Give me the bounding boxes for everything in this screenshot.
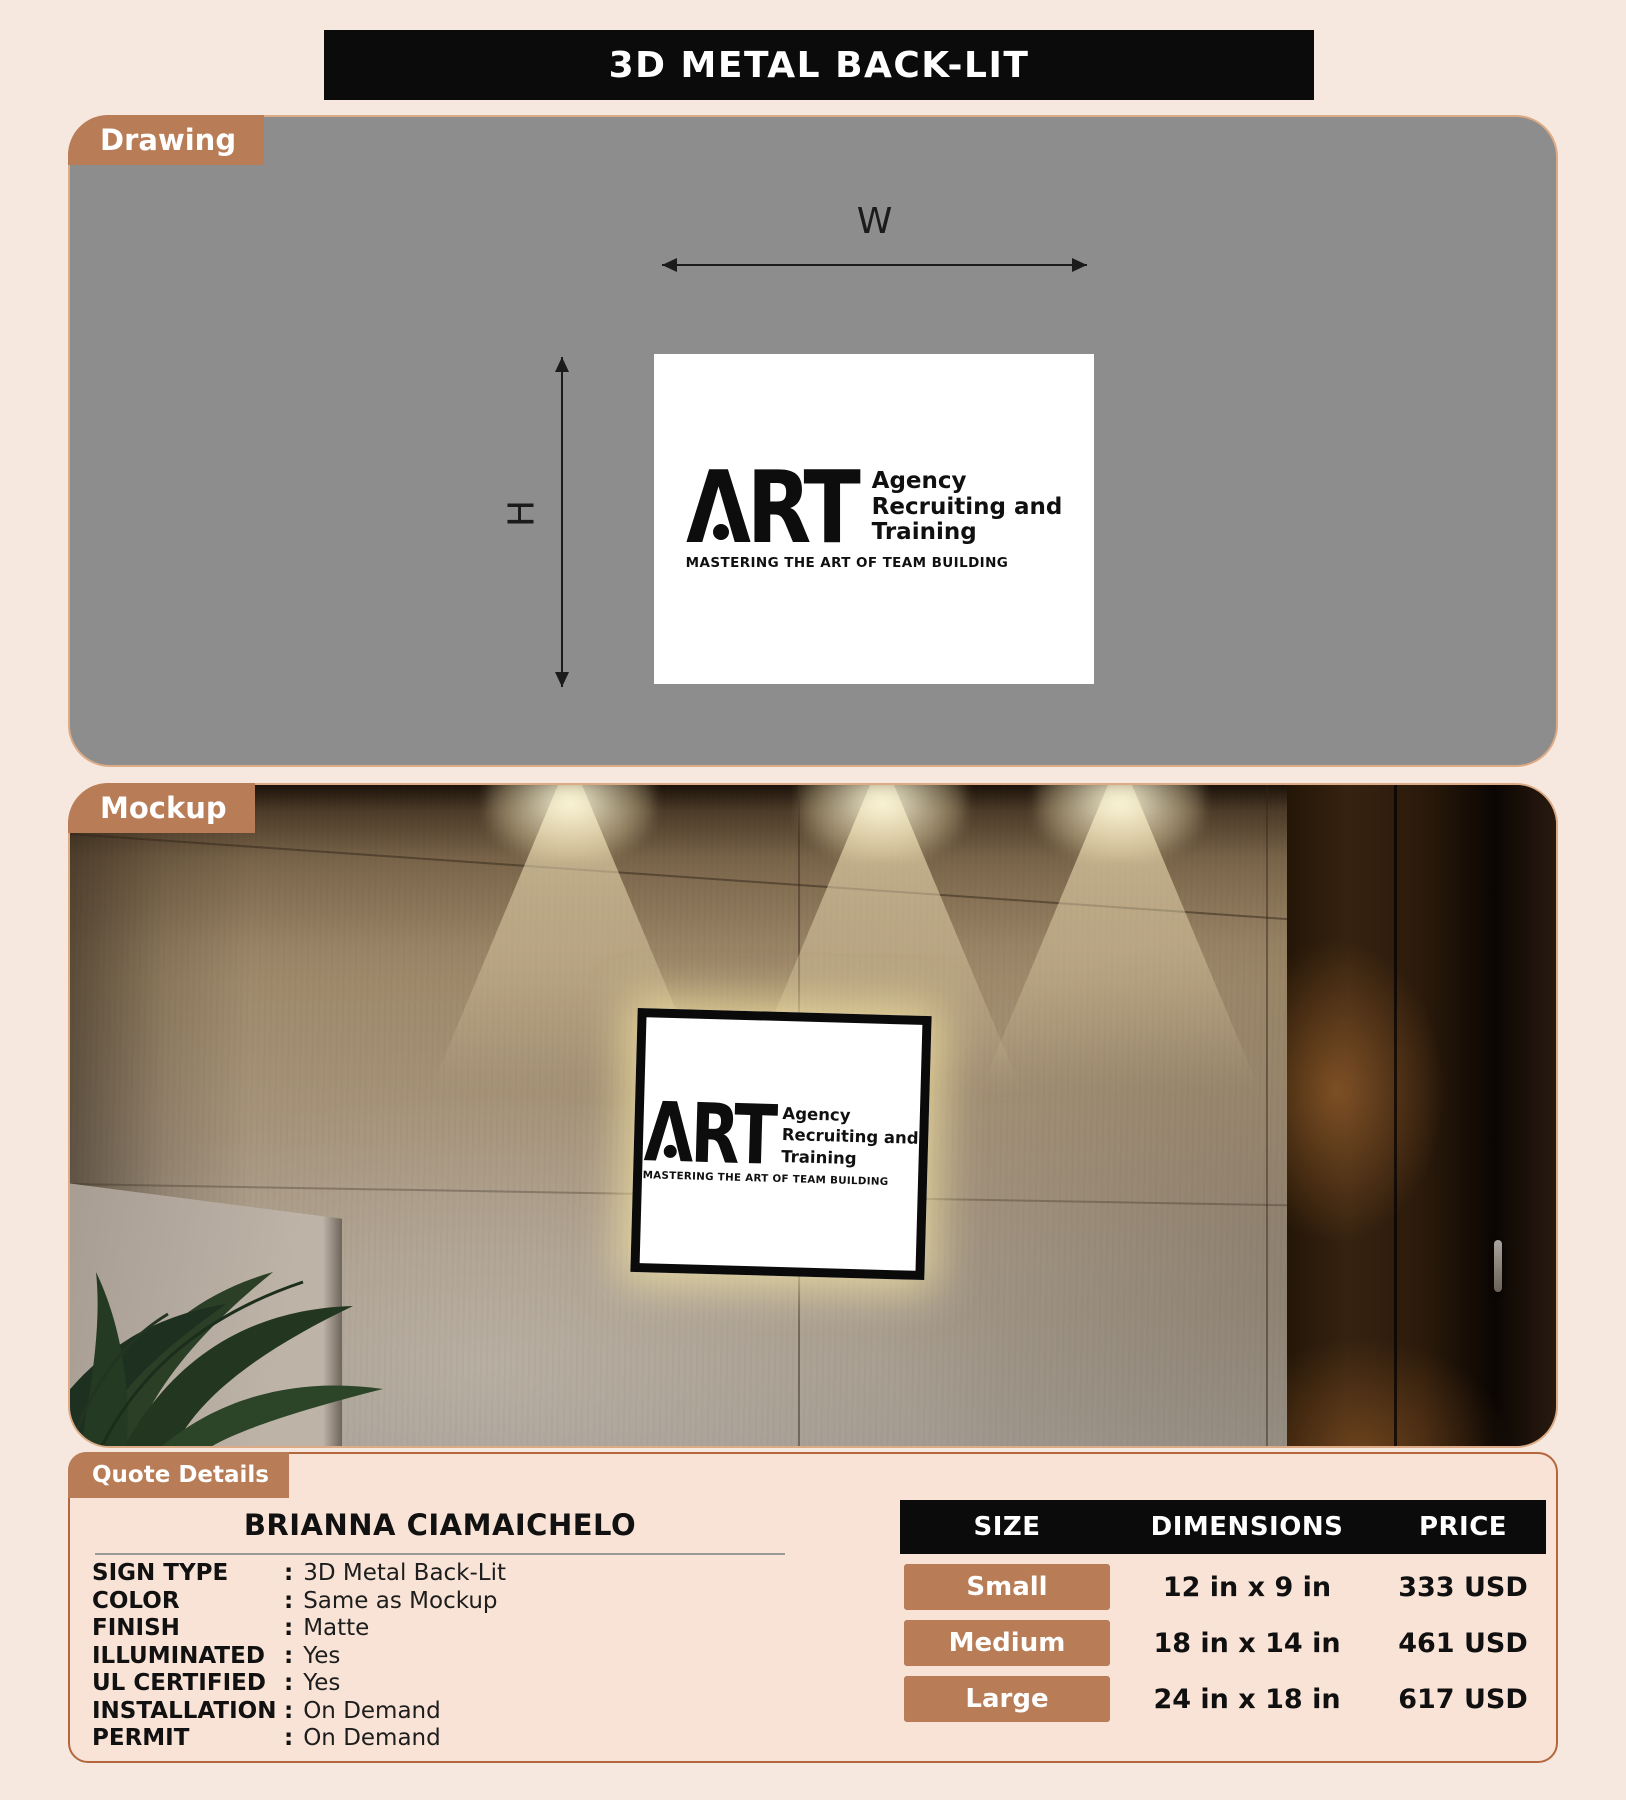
table-row-small: Small 12 in x 9 in 333 USD [900,1564,1546,1610]
spec-colon: : [284,1615,293,1641]
spec-label: ILLUMINATED [92,1643,284,1671]
price-value: 333 USD [1380,1572,1546,1603]
table-row-medium: Medium 18 in x 14 in 461 USD [900,1620,1546,1666]
art-monogram: ΛRT [686,468,858,546]
door-seam [1394,785,1397,1446]
dimensions-value: 12 in x 9 in [1114,1572,1380,1603]
wall-seam [1266,785,1268,1446]
logo-text-lines: Agency Recruiting and Training [781,1103,920,1171]
logo-line: Training [872,519,1063,545]
page-title: 3D METAL BACK-LIT [324,30,1314,100]
spec-row: ILLUMINATED:Yes [92,1643,506,1671]
size-button-medium[interactable]: Medium [904,1620,1110,1666]
logo-line: Recruiting and [872,494,1063,520]
spec-label: COLOR [92,1588,284,1616]
spec-value: On Demand [303,1698,441,1724]
art-logo: ΛRT Agency Recruiting and Training MASTE… [686,468,1063,571]
quote-sheet-page: 3D METAL BACK-LIT Drawing W H ΛRT Agency… [0,0,1626,1800]
spec-label: UL CERTIFIED [92,1670,284,1698]
spec-row: UL CERTIFIED:Yes [92,1670,506,1698]
spec-value: Same as Mockup [303,1588,497,1614]
spec-label: PERMIT [92,1725,284,1753]
quote-details-panel: Quote Details BRIANNA CIAMAICHELO SIGN T… [68,1452,1558,1763]
spotlight-hotspot [797,785,967,861]
customer-name: BRIANNA CIAMAICHELO [90,1508,790,1542]
width-dimension-label: W [662,201,1087,242]
divider [95,1553,785,1555]
size-button-small[interactable]: Small [904,1564,1110,1610]
price-table-header: SIZE DIMENSIONS PRICE [900,1500,1546,1554]
logo-line: Training [781,1146,918,1171]
mockup-tab: Mockup [68,783,255,833]
dimensions-value: 18 in x 14 in [1114,1628,1380,1659]
quote-details-tab: Quote Details [68,1452,289,1498]
spec-value: Matte [303,1615,369,1641]
mockup-panel: Mockup [68,783,1558,1448]
header-price: PRICE [1380,1512,1546,1542]
spec-label: SIGN TYPE [92,1560,284,1588]
art-logo-dot-icon [713,524,729,540]
drawing-tab: Drawing [68,115,264,165]
spec-value: Yes [303,1670,340,1696]
height-dimension-label: H [502,492,543,536]
sign-face-drawing: ΛRT Agency Recruiting and Training MASTE… [654,354,1094,684]
art-logo-dot-icon [663,1145,676,1158]
price-value: 617 USD [1380,1684,1546,1715]
spec-row: FINISH:Matte [92,1615,506,1643]
spec-colon: : [284,1698,293,1724]
price-value: 461 USD [1380,1628,1546,1659]
spec-row: COLOR:Same as Mockup [92,1588,506,1616]
backlit-sign: ΛRT Agency Recruiting and Training MASTE… [630,1008,931,1280]
logo-line: Agency [872,468,1063,494]
width-dimension-arrow [662,264,1087,266]
price-table: SIZE DIMENSIONS PRICE Small 12 in x 9 in… [900,1500,1546,1722]
spec-row: SIGN TYPE:3D Metal Back-Lit [92,1560,506,1588]
logo-text-lines: Agency Recruiting and Training [872,468,1063,546]
spec-colon: : [284,1725,293,1751]
dimensions-value: 24 in x 18 in [1114,1684,1380,1715]
plant-icon [70,1154,488,1446]
spec-value: On Demand [303,1725,441,1751]
spec-colon: : [284,1588,293,1614]
spec-row: INSTALLATION:On Demand [92,1698,506,1726]
spec-row: PERMIT:On Demand [92,1725,506,1753]
drawing-panel: Drawing W H ΛRT Agency Recruiting and Tr… [68,115,1558,767]
spec-colon: : [284,1560,293,1586]
spec-value: 3D Metal Back-Lit [303,1560,506,1586]
spec-label: INSTALLATION [92,1698,284,1726]
spotlight-hotspot [1035,785,1205,861]
art-logo: ΛRT Agency Recruiting and Training MASTE… [643,1099,920,1189]
size-button-large[interactable]: Large [904,1676,1110,1722]
spec-colon: : [284,1670,293,1696]
art-monogram: ΛRT [643,1100,773,1166]
header-size: SIZE [900,1512,1114,1542]
header-dimensions: DIMENSIONS [1114,1512,1380,1542]
spec-value: Yes [303,1643,340,1669]
spec-list: SIGN TYPE:3D Metal Back-Lit COLOR:Same a… [92,1560,506,1753]
spec-label: FINISH [92,1615,284,1643]
table-row-large: Large 24 in x 18 in 617 USD [900,1676,1546,1722]
height-dimension-arrow [561,357,563,687]
spotlight-hotspot [485,785,655,861]
door-handle [1494,1240,1502,1292]
spec-colon: : [284,1643,293,1669]
mockup-photo: ΛRT Agency Recruiting and Training MASTE… [70,785,1556,1446]
wood-door [1287,785,1556,1446]
